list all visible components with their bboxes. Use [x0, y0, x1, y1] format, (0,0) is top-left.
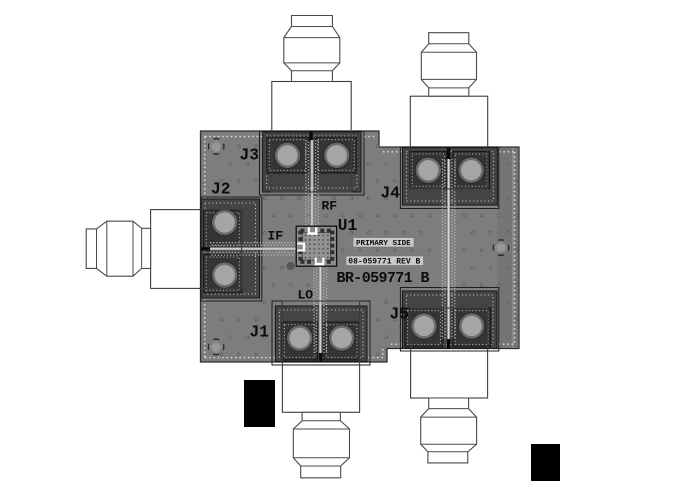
svg-text:J3: J3 [240, 147, 259, 165]
svg-text:PRIMARY SIDE: PRIMARY SIDE [356, 240, 411, 248]
svg-text:J5: J5 [390, 306, 409, 324]
svg-text:BR-059771 B: BR-059771 B [337, 270, 430, 287]
svg-text:J2: J2 [211, 181, 230, 199]
svg-text:RF: RF [322, 199, 338, 214]
svg-text:U1: U1 [338, 217, 358, 235]
svg-text:IF: IF [268, 229, 284, 244]
svg-text:J4: J4 [381, 185, 401, 203]
svg-text:08-059771 REV B: 08-059771 REV B [348, 258, 420, 267]
svg-text:J1: J1 [250, 324, 270, 342]
svg-text:LO: LO [298, 288, 314, 303]
